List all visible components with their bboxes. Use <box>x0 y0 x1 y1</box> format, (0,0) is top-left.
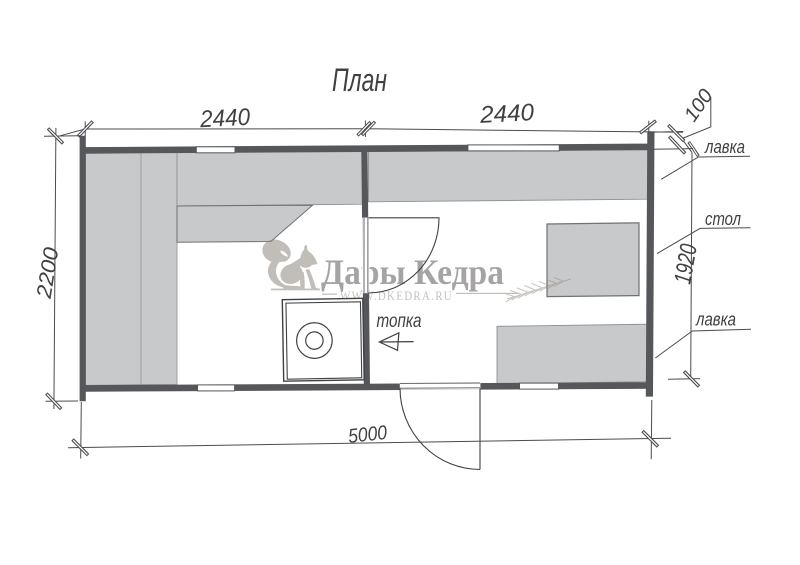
svg-text:План: План <box>332 62 387 98</box>
svg-text:лавка: лавка <box>704 137 745 157</box>
svg-text:5000: 5000 <box>347 422 388 448</box>
svg-text:топка: топка <box>377 311 422 332</box>
svg-text:2440: 2440 <box>478 99 535 129</box>
svg-text:Дары Кедра: Дары Кедра <box>321 252 504 292</box>
svg-text:стол: стол <box>705 209 741 229</box>
svg-text:лавка: лавка <box>695 310 736 330</box>
svg-text:2440: 2440 <box>198 104 251 134</box>
